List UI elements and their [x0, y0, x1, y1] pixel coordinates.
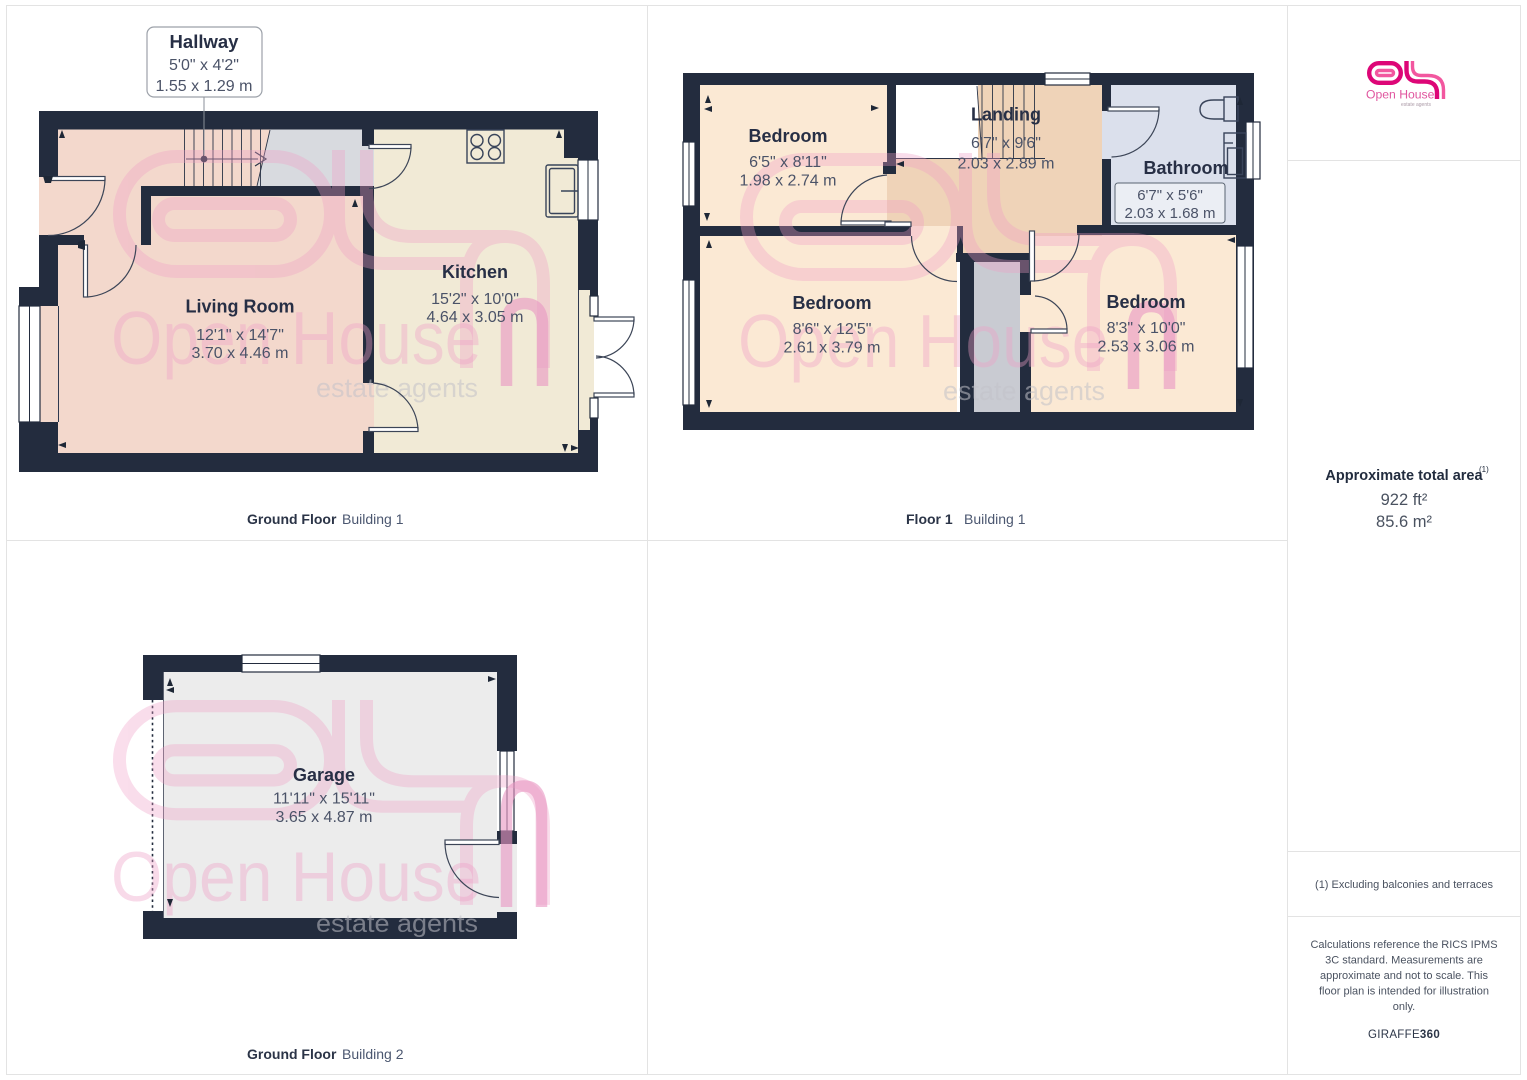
svg-text:Building 1: Building 1: [342, 511, 404, 527]
svg-text:(1) Excluding balconies and te: (1) Excluding balconies and terraces: [1315, 879, 1493, 891]
svg-text:6'7" x 9'6": 6'7" x 9'6": [971, 135, 1041, 152]
svg-text:2.61 x 3.79 m: 2.61 x 3.79 m: [784, 340, 881, 357]
svg-text:Building 2: Building 2: [342, 1046, 404, 1062]
svg-text:3C standard. Measurements are: 3C standard. Measurements are: [1325, 955, 1483, 967]
svg-text:922 ft²: 922 ft²: [1381, 491, 1428, 509]
svg-text:approximate and not to scale.: approximate and not to scale. This: [1320, 970, 1488, 982]
svg-text:Kitchen: Kitchen: [442, 262, 508, 282]
svg-text:Bedroom: Bedroom: [792, 293, 871, 313]
svg-text:6'7" x 5'6": 6'7" x 5'6": [1137, 187, 1203, 204]
svg-text:8'6" x 12'5": 8'6" x 12'5": [793, 321, 872, 338]
svg-text:Approximate total area: Approximate total area: [1325, 468, 1483, 484]
svg-text:3.70 x 4.46 m: 3.70 x 4.46 m: [192, 345, 289, 362]
svg-text:Bedroom: Bedroom: [748, 126, 827, 146]
svg-text:estate agents: estate agents: [1401, 102, 1432, 108]
svg-text:4.64 x 3.05 m: 4.64 x 3.05 m: [427, 309, 524, 326]
svg-text:Hallway: Hallway: [170, 31, 240, 52]
svg-text:1.55 x 1.29 m: 1.55 x 1.29 m: [156, 78, 253, 95]
svg-text:2.03 x 1.68 m: 2.03 x 1.68 m: [1125, 205, 1216, 222]
svg-text:15'2" x 10'0": 15'2" x 10'0": [431, 291, 519, 308]
svg-text:Floor 1: Floor 1: [906, 511, 953, 527]
svg-text:3.65 x 4.87 m: 3.65 x 4.87 m: [276, 809, 373, 826]
svg-text:Bathroom: Bathroom: [1144, 158, 1229, 178]
svg-text:2.53 x 3.06 m: 2.53 x 3.06 m: [1098, 339, 1195, 356]
svg-text:GIRAFFE360: GIRAFFE360: [1368, 1029, 1440, 1041]
svg-text:2.03 x 2.89 m: 2.03 x 2.89 m: [958, 156, 1055, 173]
svg-text:6'5" x 8'11": 6'5" x 8'11": [749, 154, 827, 171]
svg-text:Ground Floor: Ground Floor: [247, 1046, 337, 1062]
svg-text:Garage: Garage: [293, 765, 355, 785]
svg-text:only.: only.: [1393, 1001, 1415, 1013]
svg-text:Calculations reference the RIC: Calculations reference the RICS IPMS: [1310, 939, 1497, 951]
svg-text:12'1" x 14'7": 12'1" x 14'7": [196, 327, 284, 344]
svg-text:85.6 m²: 85.6 m²: [1376, 513, 1432, 531]
svg-text:Building 1: Building 1: [964, 511, 1026, 527]
svg-text:floor plan is intended for ill: floor plan is intended for illustration: [1319, 986, 1489, 998]
svg-text:Bedroom: Bedroom: [1106, 292, 1185, 312]
svg-text:Ground Floor: Ground Floor: [247, 511, 337, 527]
svg-text:1.98 x 2.74 m: 1.98 x 2.74 m: [740, 173, 837, 190]
svg-text:Landing: Landing: [971, 105, 1041, 125]
svg-text:Open House: Open House: [1366, 88, 1435, 102]
svg-text:Living Room: Living Room: [186, 297, 295, 317]
svg-text:(1): (1): [1479, 465, 1489, 474]
svg-text:8'3" x 10'0": 8'3" x 10'0": [1107, 320, 1186, 337]
svg-text:11'11" x 15'11": 11'11" x 15'11": [273, 791, 375, 808]
svg-text:5'0" x 4'2": 5'0" x 4'2": [169, 57, 239, 74]
